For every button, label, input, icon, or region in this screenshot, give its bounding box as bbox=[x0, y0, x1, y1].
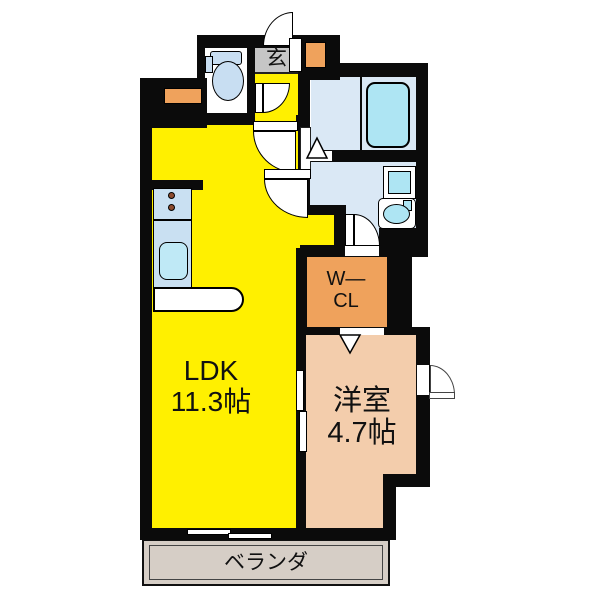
wall-toilet-entrance-divider bbox=[247, 35, 255, 117]
toilet-bowl bbox=[212, 61, 244, 101]
ldk-window-pane-1 bbox=[187, 529, 231, 535]
ldk-label-line1: LDK bbox=[150, 355, 272, 386]
hallway-door-leaf bbox=[253, 121, 298, 131]
closet-door-leaf bbox=[345, 214, 354, 246]
closet-label-line1: W― bbox=[305, 268, 387, 290]
shoe-cabinet bbox=[305, 42, 326, 68]
basin-bowl bbox=[383, 204, 410, 224]
closet-label-line2: CL bbox=[305, 290, 387, 312]
western-entry-door-arc bbox=[430, 365, 455, 395]
floor-plan: 玄 LDK 11.3帖 洋室 4.7帖 W― CL ベランダ bbox=[0, 0, 600, 600]
bath-folding-door-icon bbox=[304, 136, 330, 160]
toilet-flush-handle bbox=[205, 56, 213, 73]
western-entry-door-leaf bbox=[429, 392, 455, 399]
closet-folding-door-icon bbox=[338, 333, 362, 355]
closet-label: W― CL bbox=[305, 268, 387, 313]
storage-shelf bbox=[164, 88, 202, 104]
western-room-label-line2: 4.7帖 bbox=[306, 417, 418, 449]
wall-closet-right-block bbox=[387, 248, 412, 332]
stove-burner-1 bbox=[168, 192, 175, 199]
wall-left bbox=[140, 78, 152, 540]
closet-north-opening bbox=[345, 246, 379, 256]
western-room-label-line1: 洋室 bbox=[306, 385, 418, 417]
stove-burner-2 bbox=[168, 204, 175, 211]
kitchen-sink bbox=[159, 242, 188, 280]
entrance-label-text: 玄 bbox=[266, 47, 287, 70]
bathtub bbox=[366, 82, 410, 148]
western-room-label: 洋室 4.7帖 bbox=[306, 385, 418, 450]
ldk-label-line2: 11.3帖 bbox=[150, 386, 272, 417]
kitchen-counter bbox=[153, 287, 244, 312]
wall-western-right bbox=[416, 327, 430, 487]
bath-area-divider-line bbox=[360, 77, 362, 150]
sliding-door-pane-1 bbox=[296, 370, 304, 411]
wall-toilet-left bbox=[197, 35, 205, 125]
toilet-door-leaf bbox=[255, 83, 263, 113]
veranda-label: ベランダ bbox=[142, 551, 390, 575]
western-door-opening bbox=[417, 365, 429, 395]
ldk-window-pane-2 bbox=[228, 533, 272, 539]
wall-corridor-stub bbox=[296, 115, 310, 127]
wall-bath-top bbox=[328, 63, 428, 77]
ldk-label: LDK 11.3帖 bbox=[150, 355, 272, 418]
washing-machine-inner bbox=[388, 171, 411, 194]
veranda-label-text: ベランダ bbox=[224, 551, 308, 574]
entrance-label: 玄 bbox=[255, 47, 298, 71]
western-room-floor-lower bbox=[306, 474, 383, 534]
ldk-door-leaf bbox=[264, 169, 311, 179]
